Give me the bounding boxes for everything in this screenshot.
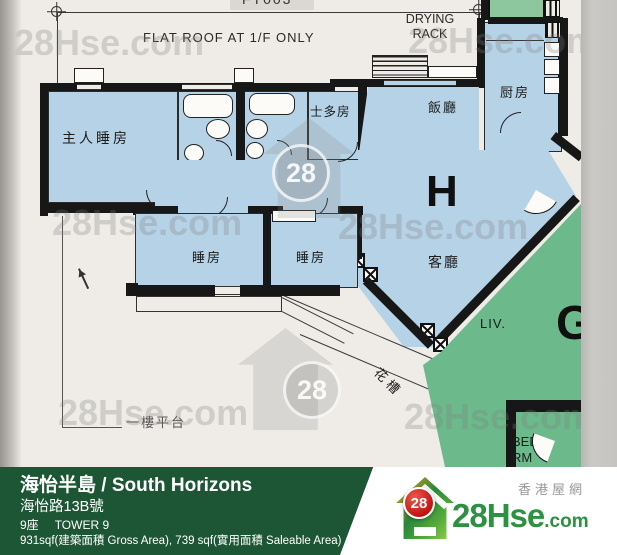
adjacent-living-label: LIV. (480, 316, 506, 331)
kitchen-appliance (544, 77, 560, 94)
wall (236, 91, 245, 168)
drying-rack-label-line1: DRYING (398, 12, 462, 26)
store-room-label: 士多房 (310, 101, 351, 120)
annotation-arrow (78, 268, 89, 289)
master-bedroom-label: 主人睡房 (62, 128, 130, 148)
bathtub (249, 93, 295, 115)
louver-icon (543, 0, 560, 17)
toilet (206, 119, 230, 139)
tower-cn: 9座 (20, 518, 39, 532)
adjacent-bedroom-label-line2: RM (512, 450, 532, 465)
logo-tagline: 香港屋網 (518, 479, 586, 498)
wall (126, 283, 138, 296)
dining-label: 飯廳 (428, 97, 458, 116)
bathtub (183, 94, 233, 118)
wall (240, 285, 340, 296)
kitchen-label: 厨房 (500, 82, 530, 101)
bedroom-2-label: 睡房 (296, 247, 326, 266)
kitchen-appliance (544, 42, 560, 57)
kitchen-counter (486, 40, 544, 41)
estate-title: 海怡半島 / South Horizons (20, 470, 252, 497)
tower-en: TOWER 9 (55, 518, 109, 532)
scan-edge-right (581, 0, 617, 467)
platform-label: 一樓平台 (126, 412, 186, 431)
toilet (246, 119, 268, 139)
wall (477, 18, 485, 88)
wall (40, 83, 48, 216)
living-label: 客廳 (428, 252, 460, 272)
wall (481, 0, 488, 20)
bay-window (136, 296, 282, 312)
watermark-badge: 28 (283, 361, 341, 419)
logo-door (414, 527, 436, 536)
window (182, 84, 232, 90)
site-logo[interactable]: 28 28Hse.com 香港屋網 (394, 475, 604, 547)
sink (246, 142, 264, 159)
scan-edge-left (0, 0, 22, 467)
wall (133, 285, 215, 296)
plan-code-chip: FT003 (230, 0, 314, 10)
wall (506, 400, 581, 412)
logo-brand-text: 28Hse (452, 497, 544, 535)
planter-label: 花槽 (370, 363, 407, 400)
tower-line: 9座TOWER 9 (20, 516, 109, 533)
survey-line-left (57, 12, 58, 83)
floorplan-screenshot: FT003 FLAT ROOF AT 1/F ONLY DRYING RACK … (0, 0, 617, 555)
window (384, 80, 456, 86)
louver-icon (545, 22, 561, 38)
estate-address: 海怡路13B號 (20, 495, 104, 516)
plan-code: FT003 (242, 0, 292, 7)
logo-domain-text: .com (544, 511, 588, 533)
info-bar: 海怡半島 / South Horizons 海怡路13B號 9座TOWER 9 … (0, 467, 617, 555)
area-info: 931sqf(建築面積 Gross Area), 739 sqf(實用面積 Sa… (20, 532, 341, 548)
closet (272, 210, 316, 222)
window (77, 84, 101, 90)
drying-rack-shelf (428, 66, 477, 78)
platform-boundary (62, 216, 63, 427)
unit-letter: H (426, 167, 458, 217)
bedroom-1-label: 睡房 (192, 247, 222, 266)
survey-marker-icon (51, 6, 62, 17)
drying-rack-icon (372, 55, 428, 78)
flat-roof-label: FLAT ROOF AT 1/F ONLY (143, 30, 315, 45)
logo-28-badge: 28 (403, 487, 435, 519)
kitchen-appliance (544, 59, 560, 75)
drying-rack-label-line2: RACK (398, 27, 462, 41)
wall (263, 213, 271, 290)
platform-boundary (62, 427, 122, 428)
ac-platform (74, 68, 104, 83)
ac-platform (234, 68, 254, 83)
window (215, 286, 240, 295)
adjacent-strip (488, 0, 543, 18)
